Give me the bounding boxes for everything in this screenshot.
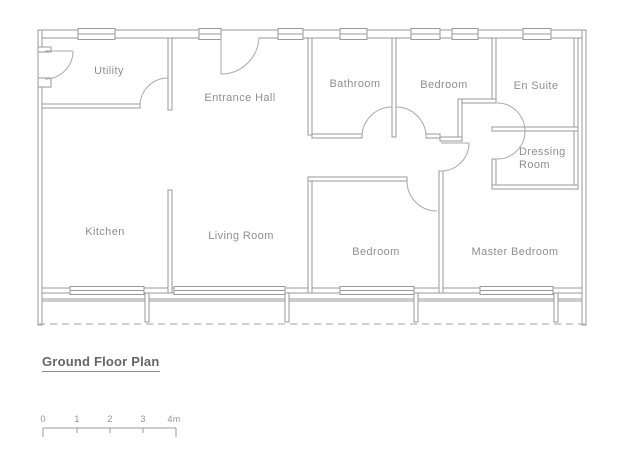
room-label-living-room: Living Room	[208, 230, 274, 242]
room-label-kitchen: Kitchen	[85, 226, 125, 238]
room-label-utility: Utility	[94, 65, 124, 77]
floor-plan-canvas: Utility Entrance Hall Bathroom Bedroom E…	[0, 0, 640, 449]
scale-label-2: 2	[107, 414, 112, 424]
plan-title: Ground Floor Plan	[42, 354, 160, 372]
room-label-dressing-room: Dressing Room	[519, 146, 585, 172]
scale-label-0: 0	[40, 414, 45, 424]
veranda-posts	[145, 293, 558, 322]
room-label-entrance-hall: Entrance Hall	[204, 92, 275, 104]
utility-door-opening	[40, 52, 44, 78]
scale-label-3: 3	[140, 414, 145, 424]
scale-label-1: 1	[74, 414, 79, 424]
room-label-bedroom-bottom: Bedroom	[352, 246, 399, 258]
room-label-bathroom: Bathroom	[330, 78, 381, 90]
room-label-master-bedroom: Master Bedroom	[472, 246, 559, 258]
room-label-bedroom-top: Bedroom	[420, 79, 467, 91]
room-label-en-suite: En Suite	[514, 80, 559, 92]
scale-label-4m: 4m	[167, 414, 180, 424]
entrance-door-opening	[222, 34, 259, 39]
doors	[45, 38, 525, 211]
scale-bar	[43, 428, 176, 437]
